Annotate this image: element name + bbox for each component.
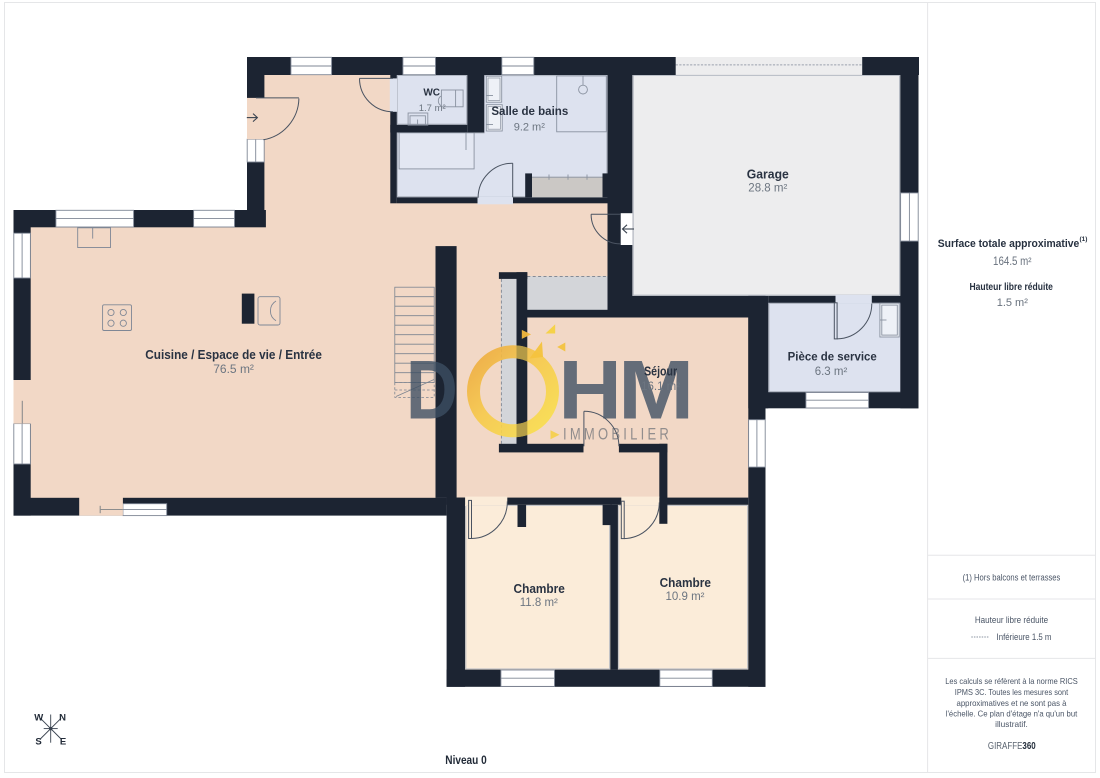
svg-text:1.5 m²: 1.5 m² <box>997 297 1029 309</box>
svg-text:l'échelle. Ce plan d'étage n'a: l'échelle. Ce plan d'étage n'a qu'un but <box>946 709 1078 719</box>
svg-text:Chambre: Chambre <box>514 582 565 596</box>
svg-text:N: N <box>59 712 66 723</box>
svg-text:1.7 m²: 1.7 m² <box>419 103 446 114</box>
svg-text:(1) Hors balcons et terrasses: (1) Hors balcons et terrasses <box>963 572 1061 582</box>
svg-text:Garage: Garage <box>747 167 789 181</box>
svg-text:6.3 m²: 6.3 m² <box>815 366 848 378</box>
svg-text:D: D <box>406 342 458 436</box>
svg-text:Surface totale approximative: Surface totale approximative <box>938 238 1080 250</box>
svg-text:28.8 m²: 28.8 m² <box>748 183 787 195</box>
svg-text:Les calculs se réfèrent à la n: Les calculs se réfèrent à la norme RICS <box>945 676 1078 686</box>
svg-text:16.1 m²: 16.1 m² <box>641 381 680 393</box>
svg-text:(1): (1) <box>1080 236 1088 243</box>
svg-text:S: S <box>35 737 41 748</box>
svg-text:W: W <box>34 712 43 723</box>
svg-text:10.9 m²: 10.9 m² <box>666 591 705 603</box>
svg-text:Chambre: Chambre <box>660 576 711 590</box>
svg-text:approximatives et ne sont pas: approximatives et ne sont pas à <box>957 698 1067 708</box>
svg-text:Hauteur libre réduite: Hauteur libre réduite <box>969 282 1053 293</box>
svg-text:Niveau 0: Niveau 0 <box>445 753 487 767</box>
svg-text:164.5 m²: 164.5 m² <box>993 256 1032 268</box>
svg-text:76.5 m²: 76.5 m² <box>213 362 254 376</box>
svg-text:E: E <box>60 737 66 748</box>
svg-text:Pièce de service: Pièce de service <box>788 349 877 363</box>
svg-text:Salle de bains: Salle de bains <box>491 106 568 118</box>
svg-text:Séjour: Séjour <box>644 365 677 379</box>
svg-text:Hauteur libre réduite: Hauteur libre réduite <box>975 615 1048 625</box>
svg-text:9.2 m²: 9.2 m² <box>514 122 546 134</box>
svg-text:GIRAFFE360: GIRAFFE360 <box>988 741 1036 752</box>
svg-text:illustratif.: illustratif. <box>995 719 1028 729</box>
svg-text:11.8 m²: 11.8 m² <box>520 597 558 609</box>
svg-text:H: H <box>558 344 622 437</box>
svg-text:IPMS 3C. Toutes les mesures so: IPMS 3C. Toutes les mesures sont <box>955 687 1069 697</box>
svg-text:WC: WC <box>423 88 440 99</box>
svg-text:Cuisine / Espace de vie / Entr: Cuisine / Espace de vie / Entrée <box>145 347 322 362</box>
svg-text:Inférieure 1.5 m: Inférieure 1.5 m <box>997 632 1052 642</box>
svg-text:IMMOBILIER: IMMOBILIER <box>563 426 672 444</box>
